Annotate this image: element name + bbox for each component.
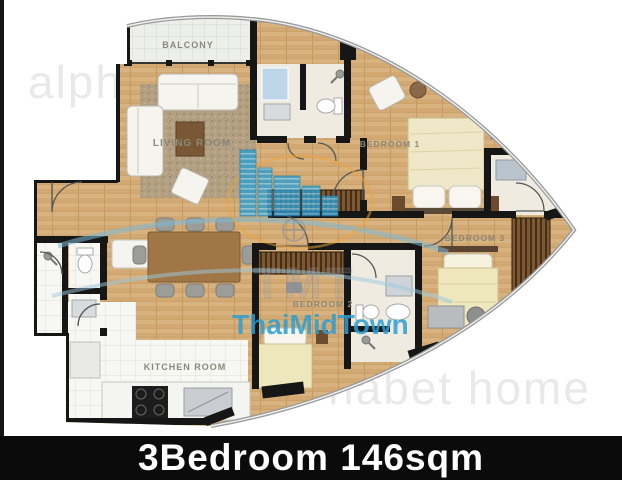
footer-title: 3Bedroom 146sqm bbox=[138, 437, 484, 478]
footer-band: 3Bedroom 146sqm bbox=[0, 436, 622, 480]
logo-globe-icon bbox=[283, 219, 305, 241]
bedroom-3-label: BEDROOM 3 bbox=[445, 233, 505, 243]
cooktop-icon bbox=[132, 386, 168, 418]
desk bbox=[428, 306, 464, 328]
kitchen-label: KITCHEN ROOM bbox=[144, 362, 227, 372]
sofa-main bbox=[158, 74, 238, 110]
living-room-label: LIVING ROOM bbox=[153, 138, 231, 149]
left-border-strip bbox=[0, 0, 4, 437]
bed-blanket bbox=[408, 118, 484, 190]
nightstand bbox=[392, 196, 405, 211]
toilet-icon bbox=[317, 98, 342, 114]
fridge bbox=[70, 342, 100, 378]
toilet-icon bbox=[77, 248, 93, 273]
shower-glass bbox=[262, 68, 288, 100]
brand-monogram: TMT bbox=[254, 259, 356, 308]
sink-icon bbox=[72, 300, 96, 317]
balcony-label: BALCONY bbox=[162, 40, 214, 50]
floor-plan-svg: alph habet home bbox=[0, 0, 622, 480]
bed-blanket bbox=[258, 344, 312, 388]
brand-name: ThaiMidTown bbox=[232, 309, 409, 340]
sink-icon bbox=[264, 104, 290, 120]
floor-plan-image: alph habet home bbox=[0, 0, 622, 480]
watermark-text-top: alph bbox=[28, 56, 123, 108]
shower-icon bbox=[560, 195, 572, 207]
toilet-icon bbox=[538, 158, 553, 183]
bedroom-1-label: BEDROOM 1 bbox=[360, 139, 420, 149]
bathroom-2 bbox=[350, 250, 415, 362]
bathroom-ensuite bbox=[491, 155, 580, 215]
pillow bbox=[413, 186, 445, 208]
pillow bbox=[449, 186, 481, 208]
